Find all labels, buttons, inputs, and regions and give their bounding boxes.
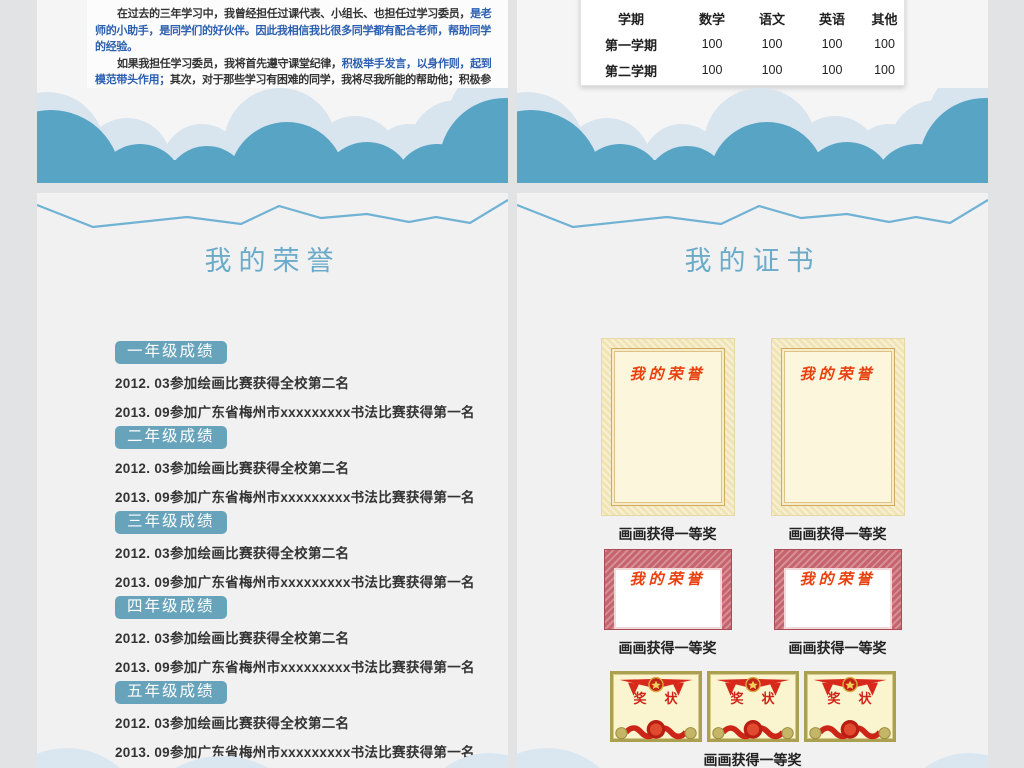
score-cell: 100: [863, 37, 906, 51]
intro-paragraph-2: 如果我担任学习委员，我将首先遵守课堂纪律，积极举手发言，以身作则，起到模范带头作…: [95, 56, 500, 89]
certificate-heading: 我的荣誉: [784, 568, 892, 589]
table-row: 第二学期 100 100 100 100: [581, 57, 904, 83]
grades-table-card: 学期 数学 语文 英语 其他 第一学期 100 100 100 100: [580, 0, 905, 86]
certificate-figure: 我的荣誉 画画获得一等奖: [601, 338, 735, 544]
red-certificate: 我的荣誉: [774, 549, 902, 630]
score-cell: 100: [743, 63, 801, 77]
award-certificate: 奖状: [707, 671, 799, 742]
gold-certificate: 我的荣誉: [601, 338, 735, 516]
grade-section-4: 四年级成绩 2012. 03参加绘画比赛获得全校第二名 2013. 09参加广东…: [115, 596, 508, 677]
row-label: 第一学期: [581, 35, 681, 54]
certificate-inner: 我的荣誉: [781, 348, 895, 506]
grade-badge: 五年级成绩: [115, 681, 227, 704]
red-certificate: 我的荣誉: [604, 549, 732, 630]
col-header: 英语: [801, 9, 863, 28]
score-cell: 100: [801, 63, 863, 77]
right-column: 学期 数学 语文 英语 其他 第一学期 100 100 100 100: [517, 0, 988, 768]
certificate-inner: 我的荣誉: [611, 348, 725, 506]
zigzag-line-decoration: [37, 193, 508, 233]
score-cell: 100: [801, 37, 863, 51]
achievement-line: 2012. 03参加绘画比赛获得全校第二名: [115, 630, 508, 648]
cloud-decoration: [37, 740, 508, 768]
table-row: 第一学期 100 100 100 100: [581, 31, 904, 57]
paragraph-segment: 如果我担任学习委员，我将首先遵守课堂纪律，: [117, 58, 342, 70]
certificates-page-title: 我的证书: [517, 239, 988, 278]
left-column: 在过去的三年学习中，我曾经担任过课代表、小组长、也担任过学习委员，是老师的小助手…: [37, 0, 508, 768]
certificate-heading: 我的荣誉: [782, 363, 894, 384]
paragraph-segment: 在过去的三年学习中，我曾经担任过课代表、小组长、也担任过学习委员，: [117, 8, 470, 20]
certificate-figure: 我的荣誉 画画获得一等奖: [604, 549, 732, 658]
cloud-wave-decoration: [517, 88, 988, 183]
prev-slide-right: 学期 数学 语文 英语 其他 第一学期 100 100 100 100: [517, 0, 988, 183]
row-label: 第二学期: [581, 61, 681, 80]
zigzag-line-decoration: [517, 193, 988, 233]
prev-slide-left: 在过去的三年学习中，我曾经担任过课代表、小组长、也担任过学习委员，是老师的小助手…: [37, 0, 508, 183]
grade-section-3: 三年级成绩 2012. 03参加绘画比赛获得全校第二名 2013. 09参加广东…: [115, 511, 508, 592]
grade-badge: 一年级成绩: [115, 341, 227, 364]
certificate-heading: 我的荣誉: [612, 363, 724, 384]
certificate-caption: 画画获得一等奖: [619, 638, 717, 658]
achievement-line: 2012. 03参加绘画比赛获得全校第二名: [115, 545, 508, 563]
grade-section-2: 二年级成绩 2012. 03参加绘画比赛获得全校第二名 2013. 09参加广东…: [115, 426, 508, 507]
red-certificates-row: 我的荣誉 画画获得一等奖 我的荣誉 画画获得一等奖: [517, 549, 988, 658]
achievement-line: 2013. 09参加广东省梅州市xxxxxxxxx书法比赛获得第一名: [115, 404, 508, 422]
certificate-figure: 我的荣誉 画画获得一等奖: [774, 549, 902, 658]
score-cell: 100: [681, 63, 743, 77]
award-certificate: 奖状: [804, 671, 896, 742]
certificate-figure: 我的荣誉 画画获得一等奖: [771, 338, 905, 544]
certificates-slide: 我的证书 我的荣誉 画画获得一等奖 我的荣誉: [517, 193, 988, 768]
certificate-inner: 我的荣誉: [614, 568, 722, 629]
certificate-caption: 画画获得一等奖: [789, 524, 887, 544]
intro-paragraph-1: 在过去的三年学习中，我曾经担任过课代表、小组长、也担任过学习委员，是老师的小助手…: [95, 6, 500, 56]
col-header: 学期: [581, 9, 681, 28]
achievement-line: 2013. 09参加广东省梅州市xxxxxxxxx书法比赛获得第一名: [115, 489, 508, 507]
award-certificates-row: 奖状 奖状: [517, 671, 988, 742]
grade-sections: 一年级成绩 2012. 03参加绘画比赛获得全校第二名 2013. 09参加广东…: [115, 341, 508, 762]
honors-page-title: 我的荣誉: [37, 239, 508, 278]
grades-table: 学期 数学 语文 英语 其他 第一学期 100 100 100 100: [581, 5, 904, 83]
award-certificate: 奖状: [610, 671, 702, 742]
certificate-caption: 画画获得一等奖: [619, 524, 717, 544]
score-cell: 100: [681, 37, 743, 51]
slides-preview-canvas: 在过去的三年学习中，我曾经担任过课代表、小组长、也担任过学习委员，是老师的小助手…: [0, 0, 1024, 768]
col-header: 其他: [863, 9, 906, 28]
achievement-line: 2012. 03参加绘画比赛获得全校第二名: [115, 375, 508, 393]
award-heading: 奖状: [710, 688, 796, 707]
certificate-heading: 我的荣誉: [614, 568, 722, 589]
intro-text-box: 在过去的三年学习中，我曾经担任过课代表、小组长、也担任过学习委员，是老师的小助手…: [87, 0, 508, 88]
grade-badge: 四年级成绩: [115, 596, 227, 619]
col-header: 语文: [743, 9, 801, 28]
achievement-line: 2012. 03参加绘画比赛获得全校第二名: [115, 460, 508, 478]
cloud-decoration: [517, 740, 988, 768]
table-header-row: 学期 数学 语文 英语 其他: [581, 5, 904, 31]
certificate-inner: 我的荣誉: [784, 568, 892, 629]
grade-badge: 三年级成绩: [115, 511, 227, 534]
cloud-wave-decoration: [37, 88, 508, 183]
certificate-caption: 画画获得一等奖: [789, 638, 887, 658]
honors-slide: 我的荣誉 一年级成绩 2012. 03参加绘画比赛获得全校第二名 2013. 0…: [37, 193, 508, 768]
grade-badge: 二年级成绩: [115, 426, 227, 449]
gold-certificates-row: 我的荣誉 画画获得一等奖 我的荣誉 画画获得一等奖: [517, 338, 988, 544]
gold-certificate: 我的荣誉: [771, 338, 905, 516]
col-header: 数学: [681, 9, 743, 28]
score-cell: 100: [743, 37, 801, 51]
achievement-line: 2013. 09参加广东省梅州市xxxxxxxxx书法比赛获得第一名: [115, 574, 508, 592]
achievement-line: 2013. 09参加广东省梅州市xxxxxxxxx书法比赛获得第一名: [115, 659, 508, 677]
award-heading: 奖状: [807, 688, 893, 707]
award-heading: 奖状: [613, 688, 699, 707]
achievement-line: 2012. 03参加绘画比赛获得全校第二名: [115, 715, 508, 733]
grade-section-1: 一年级成绩 2012. 03参加绘画比赛获得全校第二名 2013. 09参加广东…: [115, 341, 508, 422]
score-cell: 100: [863, 63, 906, 77]
